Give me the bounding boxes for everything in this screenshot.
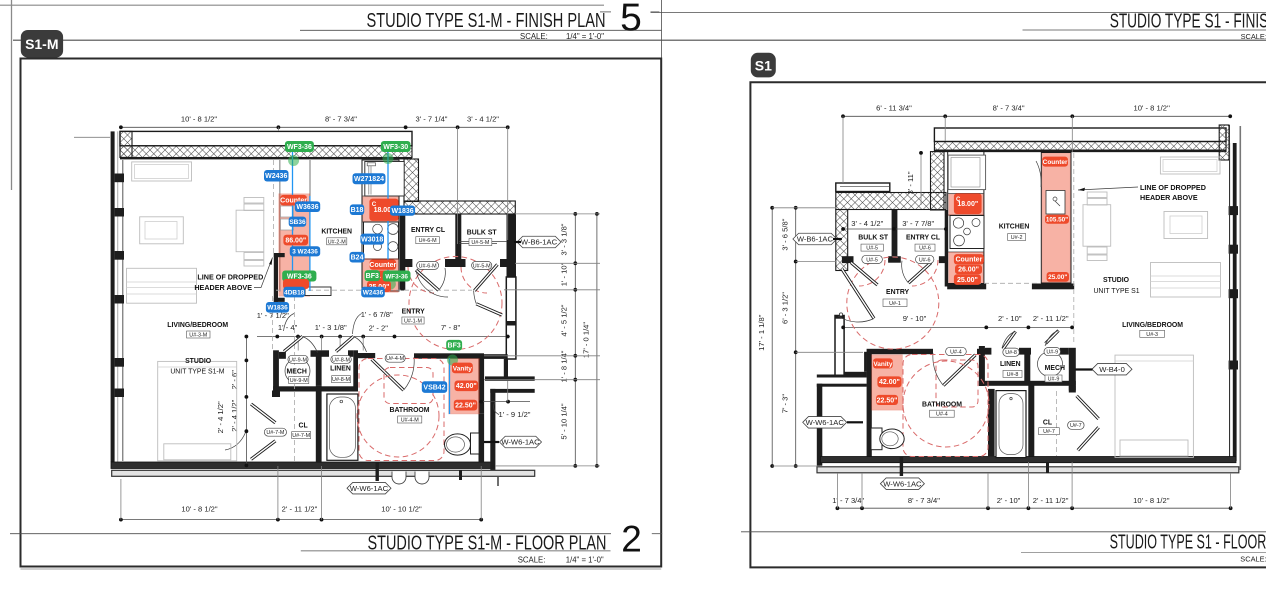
svg-text:U#-1-M: U#-1-M <box>404 319 422 325</box>
svg-text:STUDIO: STUDIO <box>185 358 212 365</box>
svg-text:SCALE:: SCALE: <box>518 556 546 565</box>
svg-text:1' - 10": 1' - 10" <box>560 262 569 286</box>
svg-text:S1-M: S1-M <box>25 36 58 52</box>
svg-text:3 W2436: 3 W2436 <box>292 249 318 256</box>
svg-text:BATHROOM: BATHROOM <box>389 407 429 414</box>
svg-text:S1: S1 <box>755 58 772 74</box>
svg-text:25.00": 25.00" <box>1048 274 1067 281</box>
svg-text:WF3-36: WF3-36 <box>385 273 408 280</box>
svg-text:U#-8: U#-8 <box>1007 372 1019 378</box>
svg-text:U#-9-M: U#-9-M <box>289 357 307 363</box>
svg-text:10' - 8 1/2": 10' - 8 1/2" <box>181 505 218 514</box>
svg-text:U#-3-M: U#-3-M <box>189 333 207 339</box>
svg-text:LIVING/BEDROOM: LIVING/BEDROOM <box>167 322 228 329</box>
svg-text:1' - 8 1/4": 1' - 8 1/4" <box>560 350 569 382</box>
svg-text:86.00": 86.00" <box>285 237 306 244</box>
svg-text:2' - 11 1/2": 2' - 11 1/2" <box>1033 496 1069 505</box>
svg-text:KITCHEN: KITCHEN <box>999 224 1030 231</box>
svg-text:6' - 3 1/2": 6' - 3 1/2" <box>781 292 790 324</box>
svg-text:BATHROOM: BATHROOM <box>922 402 962 409</box>
svg-text:WF3-36: WF3-36 <box>287 144 312 151</box>
svg-text:U#-6: U#-6 <box>919 246 931 252</box>
svg-text:U#-3: U#-3 <box>1146 332 1158 338</box>
svg-text:42.00": 42.00" <box>879 379 900 386</box>
svg-text:42.00": 42.00" <box>456 383 477 390</box>
svg-text:BULK ST: BULK ST <box>858 235 889 242</box>
svg-text:STUDIO TYPE S1 - FLOOR PLAN: STUDIO TYPE S1 - FLOOR PLAN <box>1110 532 1266 554</box>
svg-text:U#-5: U#-5 <box>866 246 878 252</box>
svg-text:LINEN: LINEN <box>1000 361 1021 368</box>
svg-text:W3636: W3636 <box>296 204 318 211</box>
svg-text:4' - 5 1/2": 4' - 5 1/2" <box>560 304 569 336</box>
svg-text:MECH: MECH <box>1045 365 1065 372</box>
svg-text:U#-9: U#-9 <box>1046 350 1058 356</box>
svg-text:B24: B24 <box>351 255 364 262</box>
svg-text:Counter: Counter <box>955 257 982 264</box>
svg-text:10' - 8 1/2": 10' - 8 1/2" <box>181 115 218 124</box>
svg-text:2' - 2": 2' - 2" <box>369 324 389 333</box>
svg-text:STUDIO: STUDIO <box>1103 277 1130 284</box>
svg-text:B18: B18 <box>351 207 364 214</box>
svg-text:1/4" = 1'-0": 1/4" = 1'-0" <box>566 556 604 565</box>
svg-text:SCALE:: SCALE: <box>1240 555 1266 564</box>
svg-text:6' - 11 3/4": 6' - 11 3/4" <box>876 103 912 112</box>
svg-text:C: C <box>372 201 377 208</box>
svg-text:22.50": 22.50" <box>877 397 898 404</box>
svg-text:U#-7: U#-7 <box>1070 423 1082 429</box>
svg-text:1' - 9 1/2": 1' - 9 1/2" <box>499 410 531 419</box>
svg-text:VSB42: VSB42 <box>423 384 445 391</box>
svg-text:Vanity: Vanity <box>453 365 473 372</box>
svg-text:7' - 3": 7' - 3" <box>781 394 790 414</box>
svg-text:U#-8-M: U#-8-M <box>332 357 350 363</box>
svg-text:2' - 10": 2' - 10" <box>998 314 1022 323</box>
svg-text:W1836: W1836 <box>391 208 413 215</box>
svg-text:W-W6-1AC: W-W6-1AC <box>501 438 540 447</box>
svg-text:W3018: W3018 <box>361 236 383 243</box>
svg-text:U#-7-M: U#-7-M <box>266 430 284 436</box>
svg-text:3' - 4 1/2": 3' - 4 1/2" <box>851 219 883 228</box>
svg-text:1' - 3 1/8": 1' - 3 1/8" <box>315 323 347 332</box>
svg-text:W2436: W2436 <box>363 289 384 296</box>
svg-text:U#-4: U#-4 <box>936 412 948 418</box>
svg-text:8' - 7 3/4": 8' - 7 3/4" <box>993 103 1025 112</box>
svg-text:U#-7: U#-7 <box>1043 429 1055 435</box>
svg-text:18.00": 18.00" <box>957 201 978 208</box>
svg-text:U#-6-M: U#-6-M <box>419 263 437 269</box>
svg-text:CL: CL <box>299 422 308 429</box>
svg-text:5: 5 <box>620 0 642 40</box>
svg-text:22.50": 22.50" <box>455 402 476 409</box>
svg-text:MECH: MECH <box>287 368 307 375</box>
svg-text:WF3-30: WF3-30 <box>383 144 408 151</box>
svg-text:LIVING/BEDROOM: LIVING/BEDROOM <box>1122 322 1183 329</box>
svg-text:Counter: Counter <box>1043 159 1068 166</box>
svg-text:3' - 7 7/8": 3' - 7 7/8" <box>902 219 934 228</box>
svg-text:SCALE:: SCALE: <box>1241 32 1266 41</box>
svg-text:U#-5: U#-5 <box>866 257 878 263</box>
svg-text:17' - 0 1/4": 17' - 0 1/4" <box>582 322 591 359</box>
svg-text:LINEN: LINEN <box>330 365 351 372</box>
svg-text:SB36: SB36 <box>289 219 306 226</box>
svg-text:10' - 8 1/2'': 10' - 8 1/2'' <box>1133 103 1170 112</box>
svg-text:W-W6-1AC: W-W6-1AC <box>806 418 845 427</box>
svg-text:W-W6-1AC: W-W6-1AC <box>883 479 922 488</box>
svg-text:U#-9-M: U#-9-M <box>290 378 308 384</box>
svg-text:KITCHEN: KITCHEN <box>321 229 352 236</box>
svg-text:U#-5-M: U#-5-M <box>471 240 489 246</box>
svg-text:2' - 4 1/2": 2' - 4 1/2" <box>216 401 225 433</box>
svg-text:U#-4-M: U#-4-M <box>401 418 419 424</box>
svg-text:U#-4-M: U#-4-M <box>386 356 404 362</box>
svg-text:UNIT TYPE S1: UNIT TYPE S1 <box>1093 288 1139 295</box>
svg-text:3' - 4 1/2": 3' - 4 1/2" <box>467 115 499 124</box>
svg-text:W-B6-1AC: W-B6-1AC <box>521 238 558 247</box>
svg-text:W271824: W271824 <box>354 176 384 183</box>
svg-text:2' - 4 1/2": 2' - 4 1/2" <box>230 399 239 431</box>
svg-text:LINE OF DROPPED: LINE OF DROPPED <box>1140 183 1206 192</box>
svg-text:7' - 8": 7' - 8" <box>441 323 461 332</box>
svg-text:2' - 11 1/2": 2' - 11 1/2" <box>282 505 318 514</box>
svg-text:26.00": 26.00" <box>958 267 979 274</box>
svg-text:STUDIO TYPE S1 - FINISH PLAN: STUDIO TYPE S1 - FINISH PLAN <box>1110 10 1266 32</box>
svg-text:8' - 7 3/4": 8' - 7 3/4" <box>325 115 357 124</box>
svg-text:BF3: BF3 <box>366 273 379 280</box>
svg-text:10' - 10 1/2": 10' - 10 1/2" <box>381 505 422 514</box>
svg-text:W1836: W1836 <box>267 305 288 312</box>
svg-text:W2436: W2436 <box>265 173 287 180</box>
svg-text:U#-2: U#-2 <box>1011 235 1023 241</box>
svg-text:HEADER ABOVE: HEADER ABOVE <box>1140 193 1198 202</box>
svg-text:5' - 10 1/4": 5' - 10 1/4" <box>560 403 569 440</box>
svg-text:U#-7-M: U#-7-M <box>292 433 310 439</box>
svg-text:10' - 8 1/2'': 10' - 8 1/2'' <box>1133 496 1170 505</box>
svg-text:2: 2 <box>621 519 642 560</box>
svg-text:U#-8: U#-8 <box>1005 350 1017 356</box>
svg-text:U#-4: U#-4 <box>950 349 962 355</box>
svg-text:2' - 11 1/2": 2' - 11 1/2" <box>1033 314 1069 323</box>
svg-text:9' - 10": 9' - 10" <box>903 314 927 323</box>
svg-text:HEADER ABOVE: HEADER ABOVE <box>194 283 252 292</box>
svg-text:UNIT TYPE S1-M: UNIT TYPE S1-M <box>170 368 224 375</box>
svg-text:U#-6: U#-6 <box>919 257 931 263</box>
svg-text:Counter: Counter <box>369 262 396 269</box>
svg-text:C: C <box>956 197 961 203</box>
svg-text:ENTRY: ENTRY <box>886 289 910 296</box>
svg-text:U#-5-M: U#-5-M <box>473 263 491 269</box>
svg-text:ENTRY: ENTRY <box>402 309 426 316</box>
svg-text:4DB18: 4DB18 <box>284 289 305 296</box>
svg-text:U#-8-M: U#-8-M <box>332 377 350 383</box>
svg-text:U#-2-M: U#-2-M <box>328 239 346 245</box>
svg-text:W-B4-0: W-B4-0 <box>1099 365 1125 374</box>
svg-text:ENTRY CL: ENTRY CL <box>411 227 445 234</box>
svg-text:U#-9: U#-9 <box>1048 377 1060 383</box>
svg-text:Vanity: Vanity <box>873 361 893 368</box>
svg-text:25.00": 25.00" <box>957 277 978 284</box>
svg-text:U#-1: U#-1 <box>889 301 901 307</box>
svg-text:U#-6-M: U#-6-M <box>419 238 437 244</box>
svg-text:2' - 10": 2' - 10" <box>997 496 1021 505</box>
svg-text:105.50": 105.50" <box>1046 217 1068 224</box>
svg-text:BULK ST: BULK ST <box>467 230 498 237</box>
svg-text:CL: CL <box>1043 420 1052 427</box>
svg-text:2' - 6": 2' - 6" <box>230 370 239 390</box>
svg-text:ENTRY CL: ENTRY CL <box>906 235 940 242</box>
svg-text:1' - 6 7/8": 1' - 6 7/8" <box>361 310 393 319</box>
svg-text:STUDIO TYPE S1-M - FINISH PLAN: STUDIO TYPE S1-M - FINISH PLAN <box>367 10 606 32</box>
svg-text:W-W6-1AC: W-W6-1AC <box>350 484 389 493</box>
svg-text:BF3: BF3 <box>448 343 461 350</box>
svg-text:17' - 1 1/8": 17' - 1 1/8" <box>757 314 766 351</box>
svg-text:3' - 6 5/8": 3' - 6 5/8" <box>781 218 790 250</box>
svg-text:W-B6-1AC: W-B6-1AC <box>797 235 834 244</box>
svg-text:LINE OF DROPPED: LINE OF DROPPED <box>197 273 263 282</box>
svg-text:3' - 3 1/8": 3' - 3 1/8" <box>560 223 569 255</box>
svg-text:8' - 7 3/4": 8' - 7 3/4" <box>908 496 940 505</box>
svg-text:3' - 7 1/4": 3' - 7 1/4" <box>415 115 447 124</box>
svg-text:3' - 11": 3' - 11" <box>906 171 915 194</box>
